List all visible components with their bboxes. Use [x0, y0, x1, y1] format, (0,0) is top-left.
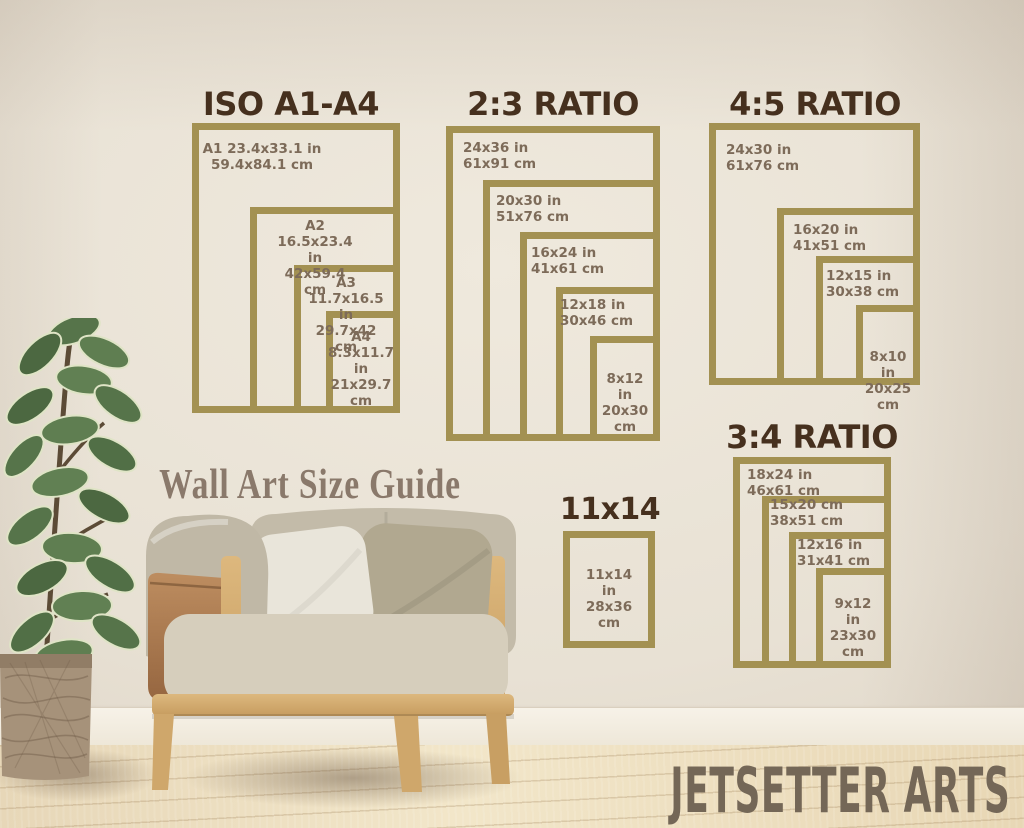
size-group-2-3: 24x36 in 61x91 cm 20x30 in 51x76 cm 16x2… — [446, 126, 660, 441]
brand-watermark: JETSETTER ARTS — [670, 760, 1010, 822]
group-title-iso: ISO A1-A4 — [203, 88, 379, 120]
frame-24x30-label: 24x30 in 61x76 cm — [726, 143, 799, 175]
chair-leg-front-right — [394, 716, 422, 792]
size-group-3-4: 18x24 in 46x61 cm 15x20 cm 38x51 cm 12x1… — [733, 457, 891, 668]
frame-15x20-label: 15x20 cm 38x51 cm — [770, 498, 843, 530]
frame-20x30-label: 20x30 in 51x76 cm — [496, 194, 569, 226]
frame-11x14-label: 11x14 in 28x36 cm — [586, 568, 632, 632]
frame-8x12-label: 8x12 in 20x30 cm — [602, 372, 648, 436]
frame-8x10-label: 8x10 in 20x25 cm — [865, 350, 911, 414]
frame-12x18-label: 12x18 in 30x46 cm — [560, 298, 633, 330]
group-title-11x14: 11x14 — [560, 495, 660, 525]
group-title-4-5: 4:5 RATIO — [729, 88, 901, 120]
frame-18x24-label: 18x24 in 46x61 cm — [747, 468, 820, 500]
chair-leg-right — [486, 714, 510, 784]
frame-12x15-label: 12x15 in 30x38 cm — [826, 269, 899, 301]
size-group-11x14: 11x14 in 28x36 cm — [563, 531, 655, 648]
chair-leg-left — [152, 714, 174, 790]
chair-seat-cushion — [164, 614, 508, 706]
wall-art-size-guide-mockup: ISO A1-A4 A1 23.4x33.1 in 59.4x84.1 cm A… — [0, 0, 1024, 828]
frame-9x12-label: 9x12 in 23x30 cm — [830, 597, 876, 661]
group-title-2-3: 2:3 RATIO — [467, 88, 639, 120]
group-title-3-4: 3:4 RATIO — [726, 421, 898, 453]
size-group-iso: A1 23.4x33.1 in 59.4x84.1 cm A2 16.5x23.… — [192, 123, 400, 413]
frame-12x16-label: 12x16 in 31x41 cm — [797, 538, 870, 570]
frame-16x20-label: 16x20 in 41x51 cm — [793, 223, 866, 255]
frame-a1-label: A1 23.4x33.1 in 59.4x84.1 cm — [203, 142, 322, 174]
frame-24x36-label: 24x36 in 61x91 cm — [463, 141, 536, 173]
frame-16x24-label: 16x24 in 41x61 cm — [531, 246, 604, 278]
woven-basket — [0, 654, 92, 780]
chair-front-rail — [152, 694, 514, 716]
frame-a4-label: A4 8.3x11.7 in 21x29.7 cm — [328, 330, 394, 410]
size-group-4-5: 24x30 in 61x76 cm 16x20 in 41x51 cm 12x1… — [709, 123, 920, 385]
armchair — [118, 486, 568, 806]
